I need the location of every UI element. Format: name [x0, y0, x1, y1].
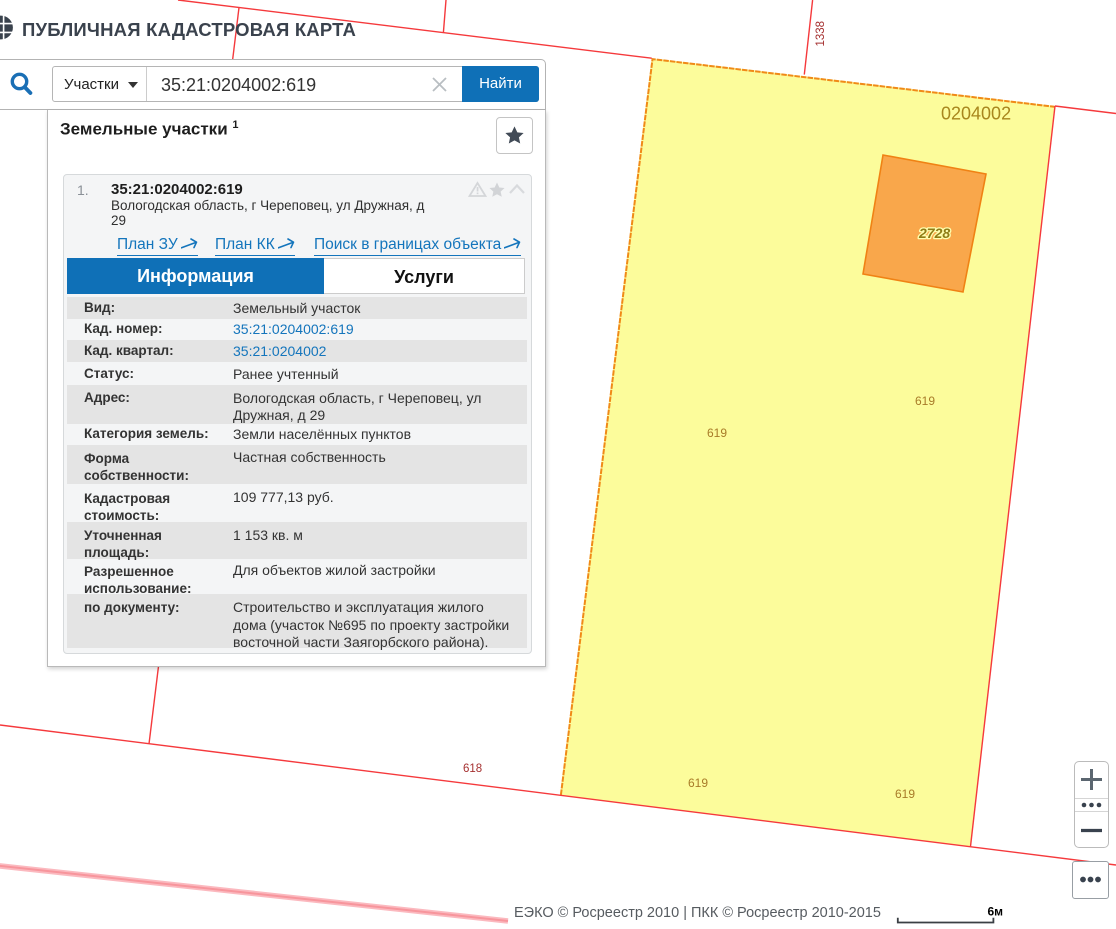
svg-text:619: 619	[915, 394, 935, 408]
svg-text:619: 619	[895, 787, 915, 801]
svg-text:2728: 2728	[918, 225, 950, 241]
svg-text:618: 618	[463, 763, 482, 775]
svg-text:1338: 1338	[815, 21, 827, 47]
svg-text:0204002: 0204002	[941, 104, 1011, 124]
svg-text:6м: 6м	[988, 905, 1004, 919]
svg-text:619: 619	[688, 776, 708, 790]
svg-text:619: 619	[707, 426, 727, 440]
